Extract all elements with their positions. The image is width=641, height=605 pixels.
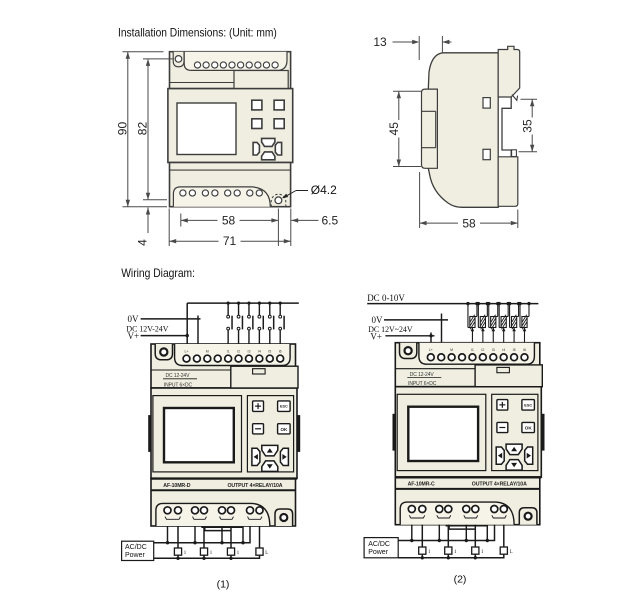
svg-text:82: 82 (135, 122, 149, 136)
svg-text:L: L (265, 551, 268, 556)
svg-text:V+: V+ (370, 332, 382, 342)
svg-text:AF-10MR-C: AF-10MR-C (408, 482, 435, 488)
svg-text:Power: Power (368, 549, 389, 556)
svg-text:Installation Dimensions: (Unit: Installation Dimensions: (Unit: mm) (118, 25, 277, 39)
svg-text:4: 4 (135, 239, 149, 246)
svg-text:V+: V+ (128, 331, 140, 341)
svg-text:(1): (1) (217, 579, 230, 591)
svg-text:L: L (510, 550, 513, 555)
svg-text:71: 71 (223, 234, 237, 248)
svg-text:Ø4.2: Ø4.2 (311, 183, 337, 197)
svg-text:Wiring Diagram:: Wiring Diagram: (121, 266, 195, 280)
svg-text:58: 58 (462, 217, 476, 231)
svg-text:0V: 0V (128, 314, 140, 324)
svg-text:45: 45 (387, 122, 401, 136)
svg-text:35: 35 (521, 119, 535, 133)
svg-text:90: 90 (115, 122, 129, 136)
svg-text:(2): (2) (454, 574, 467, 586)
svg-text:AC/DC: AC/DC (125, 544, 147, 551)
svg-text:DC 0-10V: DC 0-10V (367, 293, 405, 303)
svg-text:Power: Power (125, 552, 146, 559)
svg-text:58: 58 (222, 214, 236, 228)
svg-text:AF-10MR-D: AF-10MR-D (163, 483, 190, 489)
svg-text:AC/DC: AC/DC (368, 541, 390, 548)
svg-text:0V: 0V (372, 315, 384, 325)
svg-text:6.5: 6.5 (322, 214, 339, 228)
svg-text:13: 13 (373, 35, 387, 49)
